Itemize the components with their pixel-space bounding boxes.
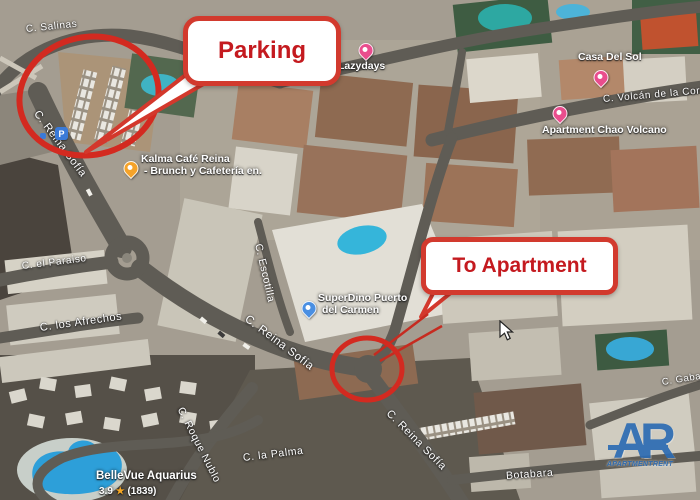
to-apartment-callout: To Apartment xyxy=(421,237,618,295)
to-apartment-callout-label: To Apartment xyxy=(452,254,586,278)
parking-callout-label: Parking xyxy=(218,37,306,65)
parking-callout: Parking xyxy=(183,16,341,86)
annotated-satellite-map: C. Salinas C. Reina Sofía C. el Paraiso … xyxy=(0,0,700,500)
